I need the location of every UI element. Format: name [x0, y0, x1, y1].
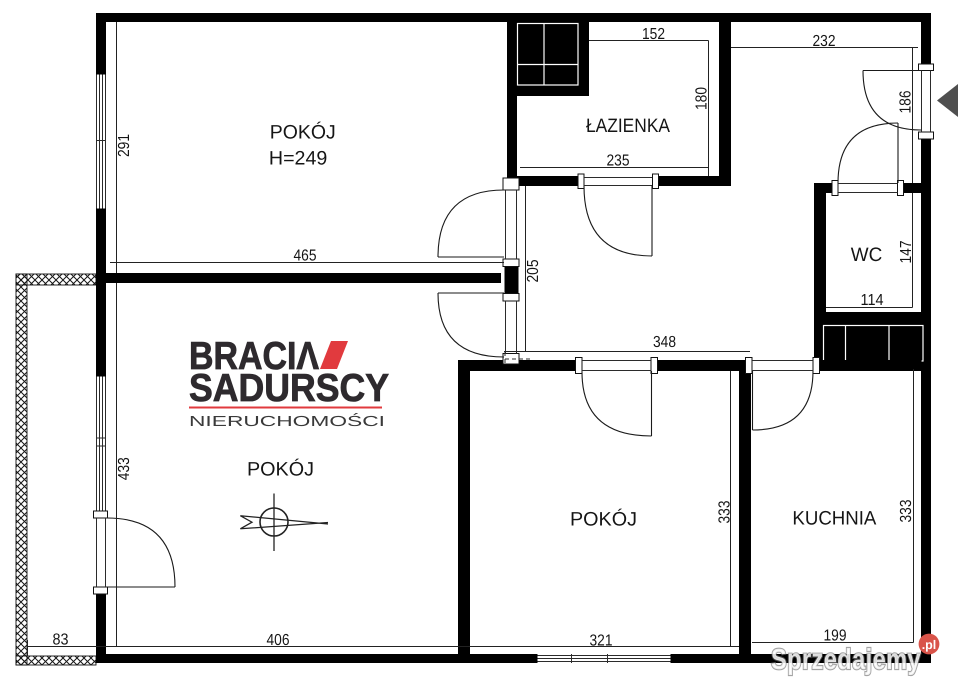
- svg-text:333: 333: [898, 499, 915, 522]
- svg-text:POKÓJ: POKÓJ: [570, 509, 637, 531]
- svg-text:232: 232: [813, 33, 836, 50]
- svg-text:333: 333: [717, 500, 734, 523]
- svg-text:.pl: .pl: [922, 638, 937, 652]
- svg-text:KUCHNIA: KUCHNIA: [792, 508, 876, 530]
- svg-text:199: 199: [824, 628, 847, 645]
- svg-text:180: 180: [694, 87, 711, 110]
- svg-text:114: 114: [861, 292, 884, 309]
- svg-text:406: 406: [267, 632, 290, 649]
- svg-text:235: 235: [607, 153, 630, 170]
- svg-text:SADURSCY: SADURSCY: [189, 367, 389, 410]
- svg-text:205: 205: [525, 259, 542, 282]
- svg-text:321: 321: [590, 633, 613, 650]
- svg-text:186: 186: [898, 90, 915, 113]
- svg-text:H=249: H=249: [269, 148, 327, 170]
- svg-text:291: 291: [116, 134, 133, 157]
- svg-text:465: 465: [294, 248, 317, 265]
- svg-text:POKÓJ: POKÓJ: [270, 122, 336, 144]
- svg-text:433: 433: [116, 457, 133, 480]
- svg-text:ŁAZIENKA: ŁAZIENKA: [586, 115, 670, 137]
- svg-text:83: 83: [53, 632, 69, 649]
- svg-text:WC: WC: [851, 244, 883, 266]
- svg-text:Sprzedajemy: Sprzedajemy: [771, 644, 921, 676]
- svg-text:348: 348: [653, 334, 676, 351]
- svg-text:147: 147: [898, 240, 915, 263]
- svg-text:POKÓJ: POKÓJ: [247, 459, 314, 481]
- svg-text:NIERUCHOMOŚCI: NIERUCHOMOŚCI: [189, 413, 385, 430]
- svg-text:152: 152: [642, 26, 665, 43]
